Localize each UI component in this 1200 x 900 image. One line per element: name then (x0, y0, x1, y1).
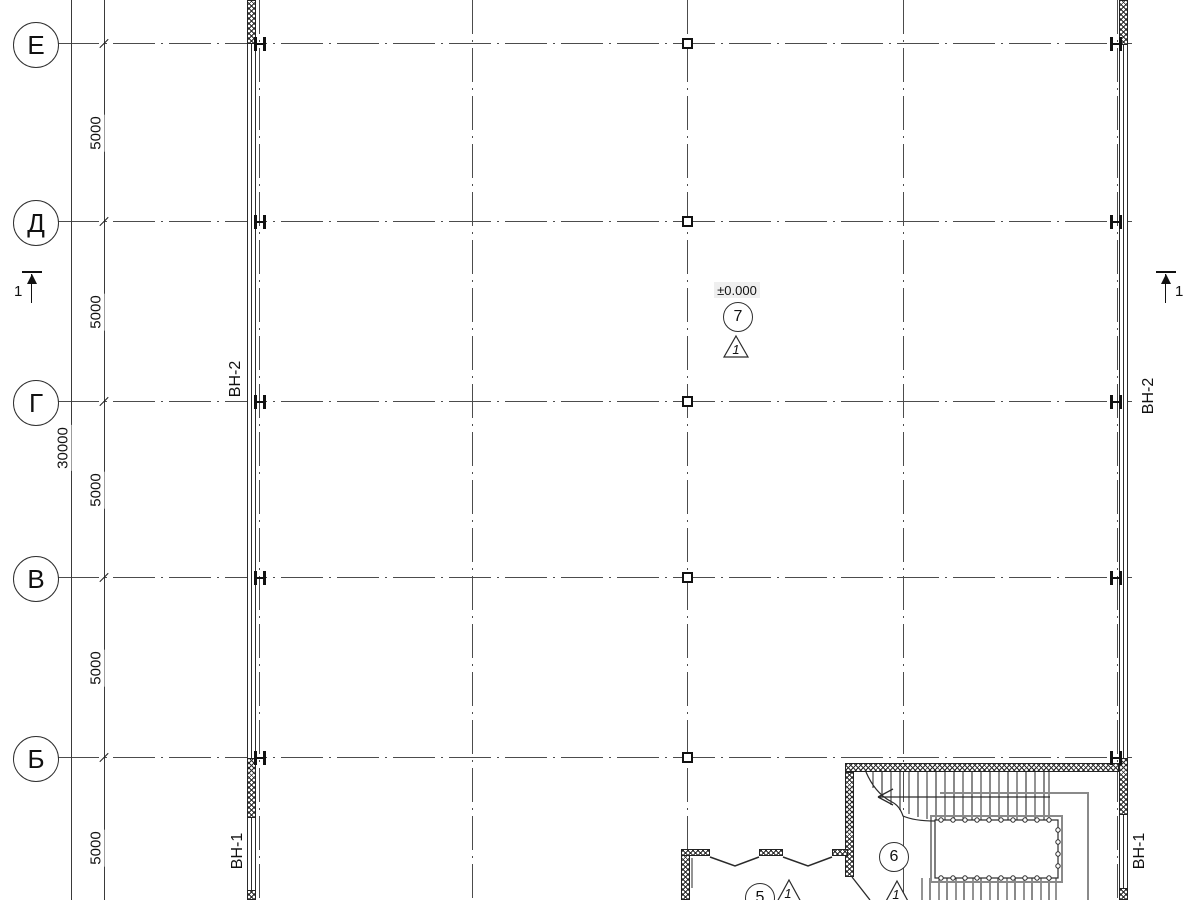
square-column-icon (682, 216, 693, 227)
detail-triangle-label: 1 (784, 886, 791, 900)
steel-column-icon (254, 395, 266, 409)
steel-column-icon (1110, 751, 1122, 765)
axis-bubble-label: В (27, 564, 44, 595)
folding-gate-lines (710, 857, 832, 866)
axis-bubble-label: Г (29, 388, 43, 419)
steel-column-icon (254, 215, 266, 229)
wall-tag-vn2-left: ВН-2 (227, 359, 245, 399)
detail-triangle-label: 1 (732, 342, 739, 357)
axis-bubble-d: Д (13, 200, 59, 246)
total-dimension-label: 30000 (55, 425, 72, 471)
stair-direction-arrow (878, 789, 1050, 805)
steel-column-icon (1110, 37, 1122, 51)
elevation-mark: ±0.000 (714, 282, 760, 298)
detail-triangle-7: 1 (724, 336, 748, 357)
stair-and-detail-linework: 1 1 1 (0, 0, 1200, 900)
span-dimension-label: 5000 (88, 293, 105, 330)
span-dimension-label: 5000 (88, 114, 105, 151)
detail-triangle-6: 1 (885, 881, 909, 900)
span-dimension-label: 5000 (88, 649, 105, 686)
room-tag-7: 7 (723, 302, 753, 332)
span-dimension-label: 5000 (88, 471, 105, 508)
section-mark-label: 1 (14, 283, 22, 300)
wall-tag-vn1-right: ВН-1 (1131, 831, 1149, 871)
axis-bubble-label: Б (27, 744, 44, 775)
railing-dark (935, 820, 1058, 878)
section-mark-bar (1156, 271, 1176, 273)
square-column-icon (682, 396, 693, 407)
floor-plan-sheet: 5000 5000 5000 5000 5000 30000 Е Д Г В Б (0, 0, 1200, 900)
section-arrow-icon (27, 274, 37, 284)
square-column-icon (682, 38, 693, 49)
room-tag-number: 7 (734, 308, 743, 326)
square-column-icon (682, 572, 693, 583)
axis-bubble-e: Е (13, 22, 59, 68)
steel-column-icon (254, 751, 266, 765)
wall-tag-vn2-right: ВН-2 (1140, 376, 1158, 416)
room-tag-number: 5 (756, 889, 765, 900)
axis-bubble-b: Б (13, 736, 59, 782)
detail-triangle-5: 1 (777, 880, 801, 900)
axis-bubble-v: В (13, 556, 59, 602)
span-dimension-label: 5000 (88, 829, 105, 866)
axis-bubble-label: Е (27, 30, 44, 61)
square-column-icon (682, 752, 693, 763)
door-leaf (852, 877, 870, 900)
steel-column-icon (1110, 395, 1122, 409)
steel-column-icon (254, 571, 266, 585)
room-tag-6: 6 (879, 842, 909, 872)
steel-column-icon (1110, 215, 1122, 229)
wall-tag-vn1-left: ВН-1 (229, 831, 247, 871)
steel-column-icon (254, 37, 266, 51)
axis-bubble-g: Г (13, 380, 59, 426)
section-arrow-icon (1161, 274, 1171, 284)
section-mark-label: 1 (1175, 283, 1183, 300)
axis-bubble-label: Д (27, 208, 45, 239)
steel-column-icon (1110, 571, 1122, 585)
room-tag-number: 6 (890, 848, 899, 866)
detail-triangle-label: 1 (892, 887, 899, 900)
elevation-value: ±0.000 (717, 283, 757, 298)
section-mark-bar (22, 271, 42, 273)
